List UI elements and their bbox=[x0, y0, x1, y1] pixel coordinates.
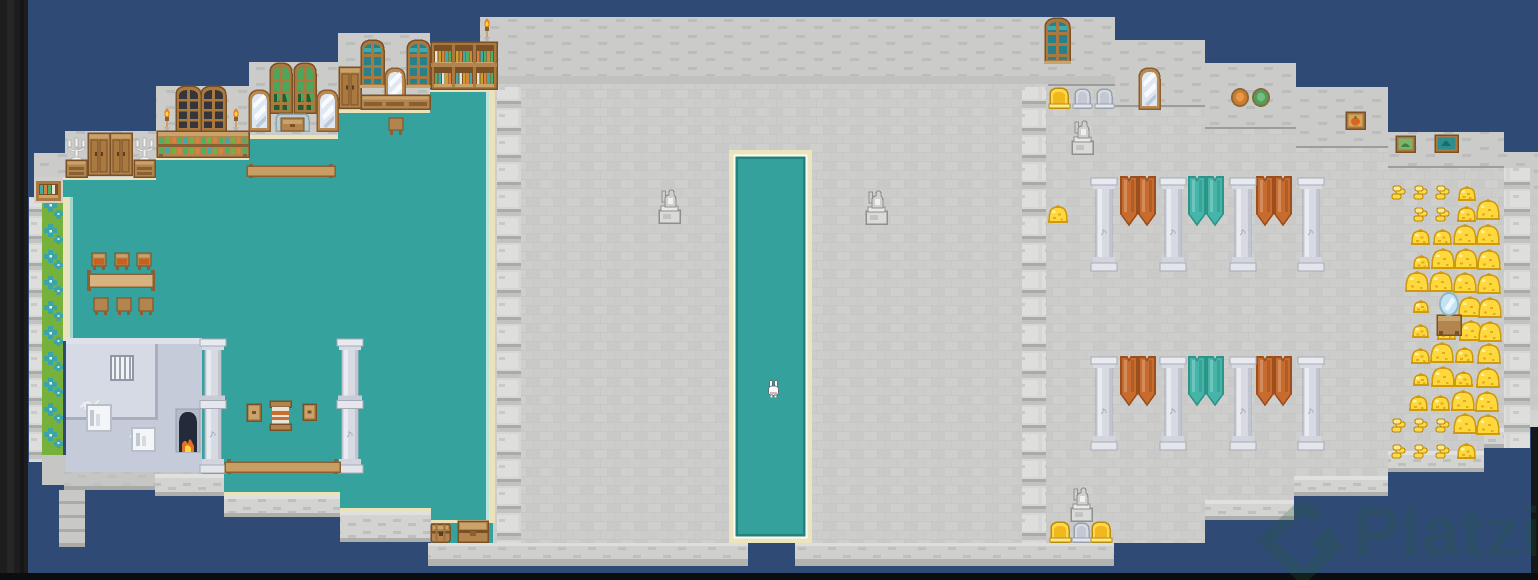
svg-text:Platzi: Platzi bbox=[1353, 493, 1538, 571]
